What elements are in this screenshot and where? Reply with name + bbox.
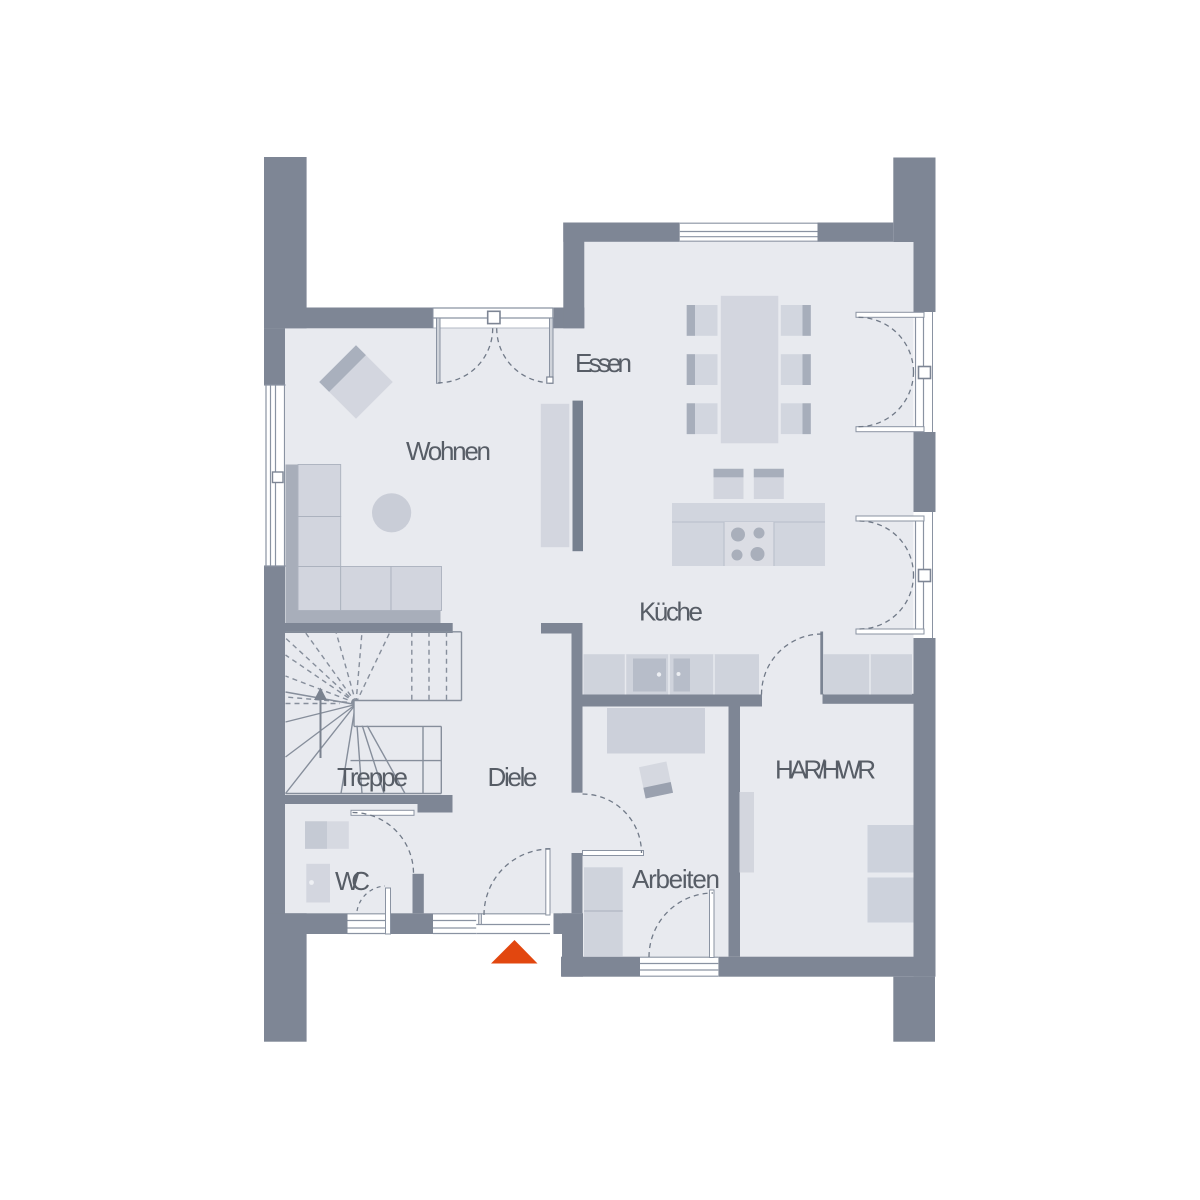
- svg-text:HAR/HWR: HAR/HWR: [775, 755, 876, 785]
- svg-text:Küche: Küche: [639, 597, 703, 627]
- svg-text:Diele: Diele: [488, 762, 538, 792]
- svg-text:Essen: Essen: [575, 348, 632, 378]
- svg-text:Treppe: Treppe: [337, 762, 408, 792]
- svg-text:Arbeiten: Arbeiten: [632, 864, 720, 894]
- svg-text:WC: WC: [335, 866, 370, 896]
- svg-text:Wohnen: Wohnen: [406, 436, 491, 466]
